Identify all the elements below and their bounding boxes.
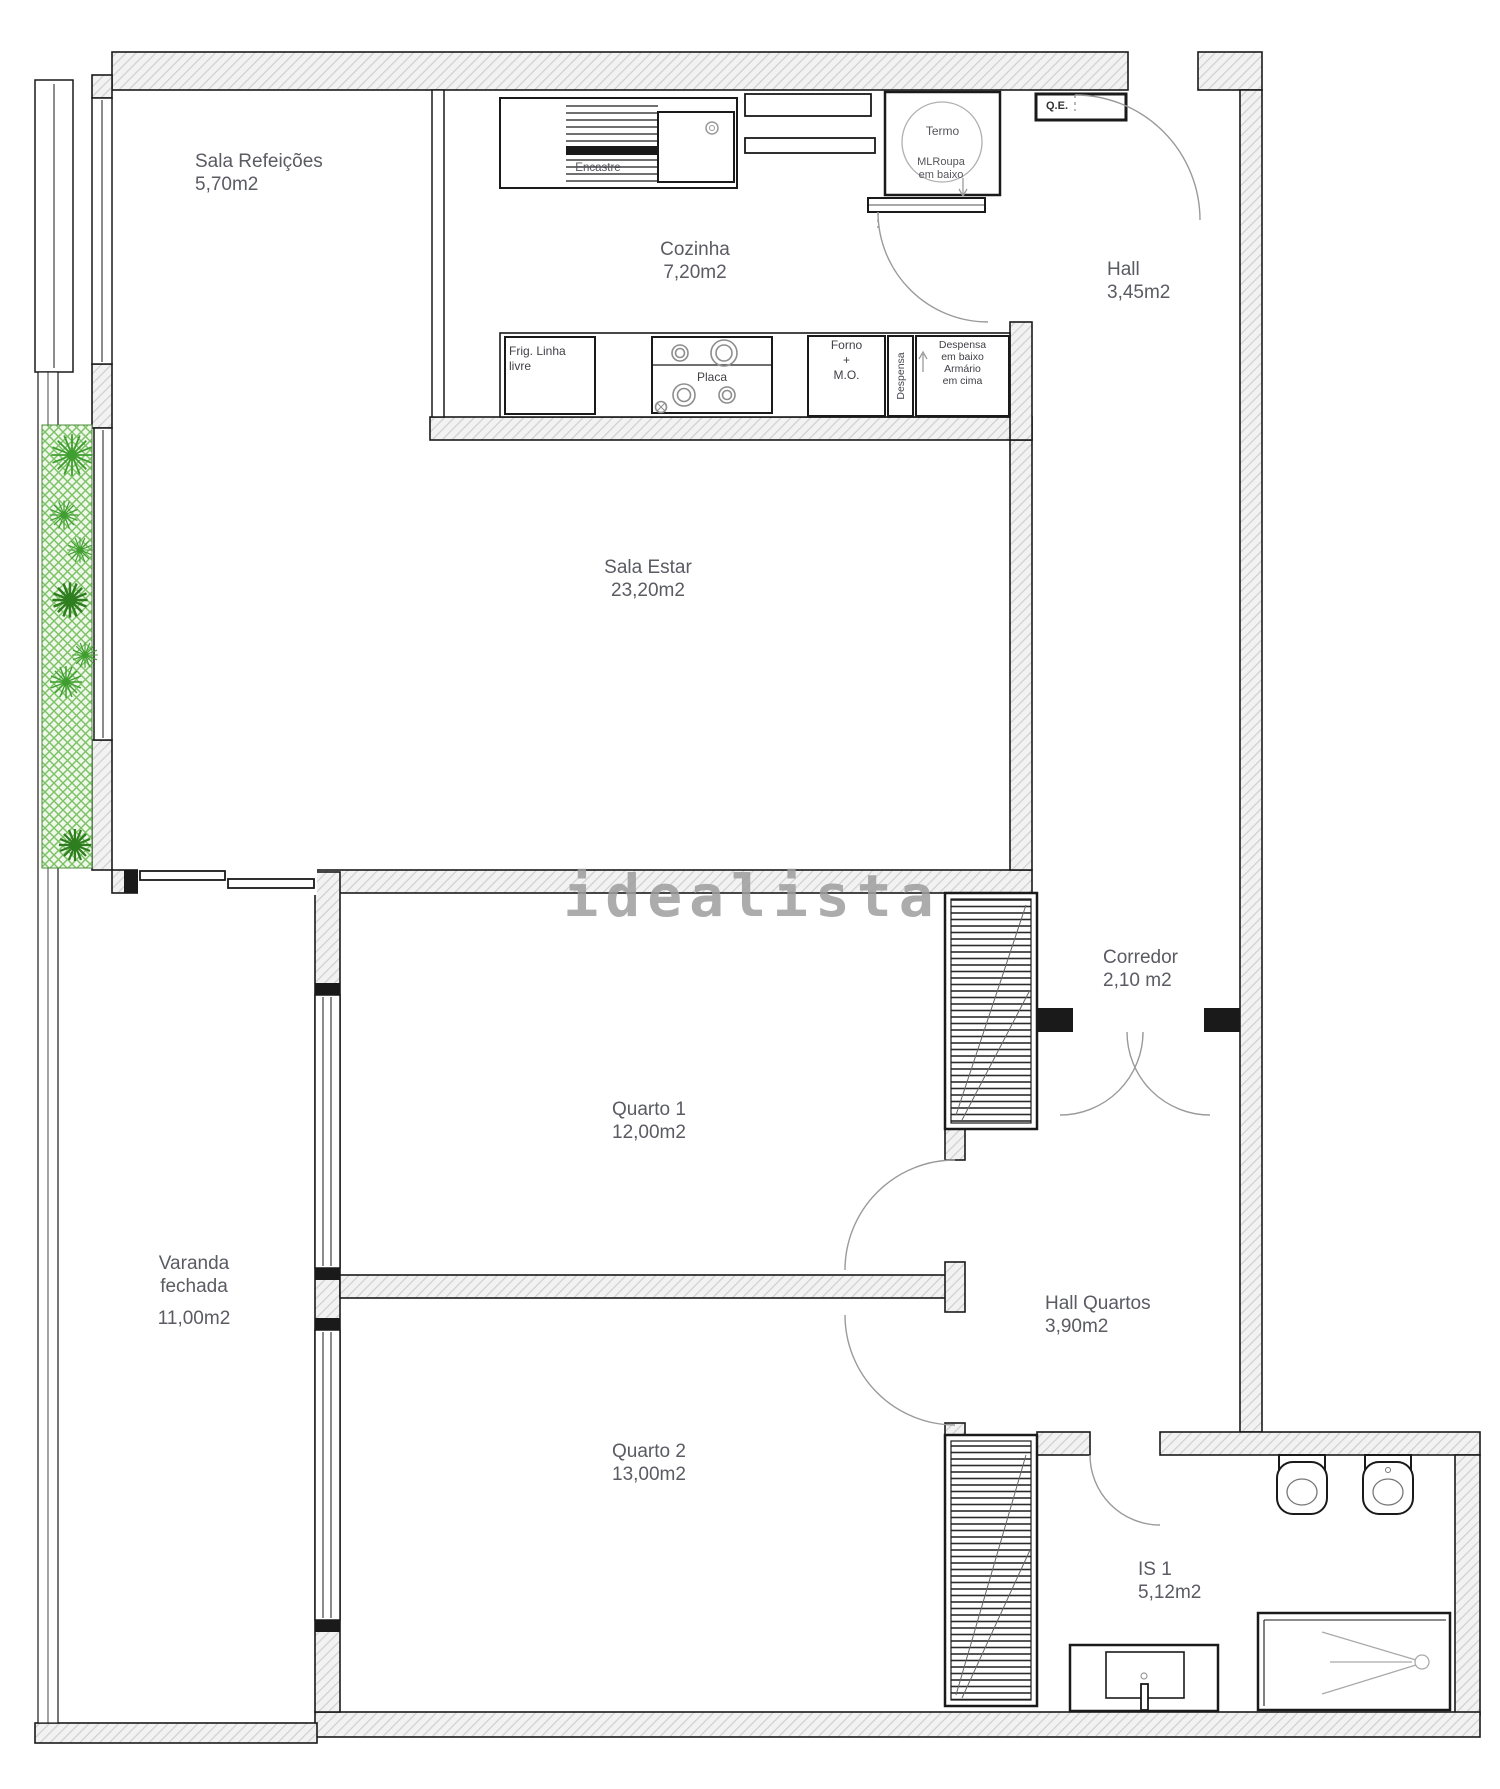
room-label-quarto2: Quarto 2 13,00m2 [612,1440,686,1486]
window-quarto1 [315,995,340,1268]
window-quarto2 [315,1330,340,1620]
label-fridge: Frig. Linha livre [509,344,566,374]
room-label-hall-quartos: Hall Quartos 3,90m2 [1045,1292,1151,1338]
label-despensa-vertical: Despensa [895,333,907,419]
shelf-lower [745,138,875,153]
kitchen-wall-divider [432,90,444,417]
wardrobe-quarto2 [945,1435,1037,1706]
label-placa: Placa [652,370,772,384]
room-label-sala-refeicoes: Sala Refeições 5,70m2 [195,150,323,196]
kitchen-door-stub [868,198,985,212]
corridor-stub-right [1204,1008,1240,1032]
quarto2-door-arc [845,1315,955,1425]
wall-bottom-varanda [35,1723,317,1743]
wall-bath-top-left [1037,1432,1090,1455]
sliding-door-leaf2 [228,879,314,888]
jamb2 [315,1268,340,1280]
label-qe: Q.E. [1046,99,1068,113]
toilet [1277,1455,1327,1514]
label-forno-mo: Forno + M.O. [808,338,885,383]
room-label-is1: IS 1 5,12m2 [1138,1558,1201,1604]
planter [42,425,98,868]
sink [658,112,734,182]
wall-stub-q1q2 [945,1262,965,1312]
bidet [1363,1455,1413,1514]
room-label-sala-estar: Sala Estar 23,20m2 [588,556,708,602]
kitchen-door-arc [878,212,988,322]
label-mlroupa: MLRoupa em baixo [885,156,997,182]
room-label-cozinha: Cozinha 7,20m2 [640,238,750,284]
wall-bath-right [1455,1455,1480,1715]
quarto1-door-arc [845,1160,955,1270]
label-encastre: Encastre [548,161,648,175]
jamb4 [315,1620,340,1632]
room-label-corredor: Corredor 2,10 m2 [1103,946,1178,992]
wall-kitchen-right [1010,322,1032,440]
wall-west-piece2 [92,364,112,428]
wall-right [1240,90,1262,1432]
room-label-quarto1: Quarto 1 12,00m2 [612,1098,686,1144]
sink-drain [706,122,718,134]
kitchen-shelves [745,94,875,153]
windows-layer [35,80,340,1723]
room-label-varanda: Varanda fechada 11,00m2 [148,1252,240,1330]
wall-corridor-left [1010,440,1032,870]
shower [1258,1613,1450,1710]
sliding-door-leaf1 [140,871,225,880]
corridor-door-arc-left [1060,1032,1143,1115]
wall-bath-top-right [1160,1432,1480,1455]
wall-west-piece3 [92,740,112,870]
wall-top-right [1198,52,1262,90]
corridor-door-arc-right [1127,1032,1210,1115]
wall-stub-q1-top [945,1129,965,1160]
wall-bottom [315,1712,1480,1737]
dish-rack-band [566,146,658,155]
jamb3 [315,1318,340,1330]
jamb1 [315,983,340,995]
room-label-hall: Hall 3,45m2 [1107,258,1170,304]
label-pantry-cabinet: Despensa em baixo Armário em cima [916,339,1009,387]
label-termo: Termo [885,124,1000,138]
wall-west-piece1 [92,75,112,98]
corridor-door-stubs [1037,1008,1240,1032]
is1-door-arc [1090,1455,1160,1525]
wardrobe-quarto1 [945,893,1037,1129]
corridor-stub-left [1037,1008,1073,1032]
washbasin [1070,1645,1218,1711]
slider-jamb [124,870,138,893]
wall-quarto1-quarto2 [340,1275,950,1298]
floor-plan: idealista Sala Refeições 5,70m2 Cozinha … [0,0,1500,1789]
idealista-watermark: idealista [552,862,952,930]
shelf-upper [745,94,871,116]
wall-kitchen-bottom [430,417,1032,440]
wall-top-left [112,52,1128,90]
basin-tap [1141,1684,1148,1710]
